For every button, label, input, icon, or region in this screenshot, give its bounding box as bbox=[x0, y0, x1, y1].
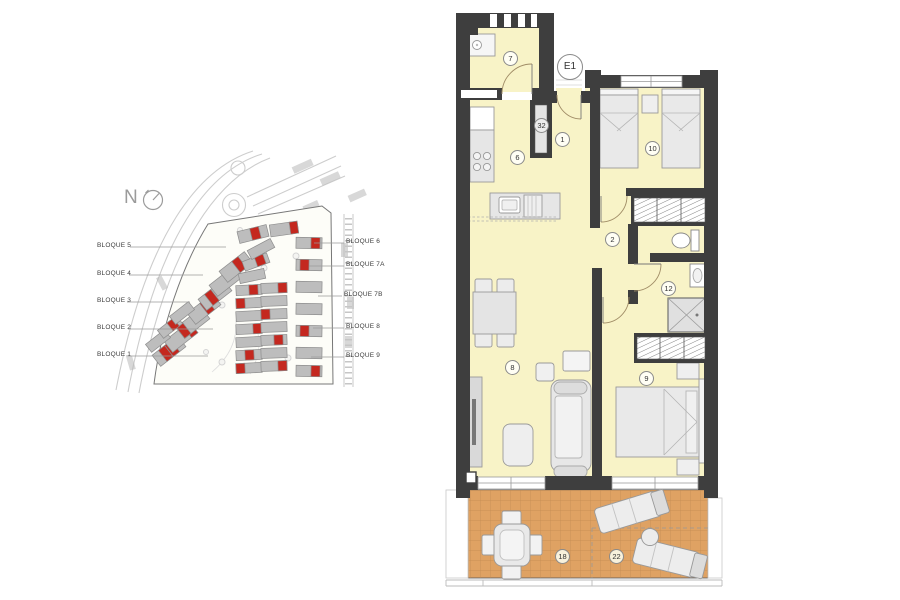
wardrobe-bedroom-10 bbox=[631, 194, 708, 226]
neighbor-terrace-right bbox=[708, 498, 722, 578]
site-label-bloque-5: BLOQUE 5 bbox=[97, 242, 131, 249]
terrace-side-table bbox=[642, 529, 659, 546]
label-bedroom-1: 9 bbox=[639, 371, 654, 386]
site-label-bloque-3: BLOQUE 3 bbox=[97, 297, 131, 304]
label-shaft: 32 bbox=[534, 118, 549, 133]
label-bedroom-2: 10 bbox=[645, 141, 660, 156]
label-bathroom: 12 bbox=[661, 281, 676, 296]
site-label-bloque-2: BLOQUE 2 bbox=[97, 324, 131, 331]
nightstand bbox=[677, 363, 699, 379]
plan-drawing bbox=[0, 0, 900, 600]
north-label: N bbox=[124, 187, 138, 209]
terrace-railing bbox=[446, 580, 722, 586]
label-kitchen: 6 bbox=[510, 150, 525, 165]
ottoman bbox=[503, 424, 533, 466]
floorplan-page: N BLOQUE 5 BLOQUE 4 BLOQUE 3 BLOQUE 2 BL… bbox=[0, 0, 900, 600]
label-entry-hall: 1 bbox=[555, 132, 570, 147]
sliding-door bbox=[478, 477, 545, 489]
wardrobe-bedroom-9 bbox=[634, 333, 708, 363]
tv-icon bbox=[472, 399, 476, 445]
floor-plan-drawing bbox=[446, 13, 722, 586]
entry-steps bbox=[556, 80, 582, 85]
label-solarium: 22 bbox=[609, 549, 624, 564]
shower-icon bbox=[668, 298, 705, 332]
terrace bbox=[446, 488, 722, 586]
site-label-bloque-8: BLOQUE 8 bbox=[346, 323, 380, 330]
single-bed-1 bbox=[600, 95, 638, 168]
label-corridor: 2 bbox=[605, 232, 620, 247]
site-label-bloque-6: BLOQUE 6 bbox=[346, 238, 380, 245]
washing-machine-icon bbox=[468, 34, 495, 56]
neighbor-terrace-left bbox=[446, 490, 468, 578]
sofa bbox=[551, 380, 591, 477]
site-label-bloque-9: BLOQUE 9 bbox=[346, 352, 380, 359]
unit-label: E1 bbox=[557, 54, 583, 80]
nightstand bbox=[642, 95, 658, 113]
site-plan-drawing bbox=[116, 151, 367, 393]
window bbox=[621, 76, 682, 87]
north-compass-icon bbox=[144, 190, 163, 210]
drainer-icon bbox=[524, 195, 542, 217]
site-label-bloque-7a: BLOQUE 7A bbox=[346, 261, 385, 268]
site-label-bloque-4: BLOQUE 4 bbox=[97, 270, 131, 277]
single-bed-2 bbox=[662, 95, 700, 168]
side-table bbox=[536, 363, 554, 381]
dining-table bbox=[473, 292, 516, 334]
label-terrace: 18 bbox=[555, 549, 570, 564]
side-table-2 bbox=[563, 351, 590, 371]
label-utility-room: 7 bbox=[503, 51, 518, 66]
site-label-bloque-7b: BLOQUE 7B bbox=[344, 291, 383, 298]
window bbox=[612, 477, 698, 489]
terrace-pillar bbox=[466, 472, 476, 483]
site-label-bloque-1: BLOQUE 1 bbox=[97, 351, 131, 358]
nightstand bbox=[677, 459, 699, 475]
toilet-icon bbox=[691, 230, 699, 251]
label-living-room: 8 bbox=[505, 360, 520, 375]
